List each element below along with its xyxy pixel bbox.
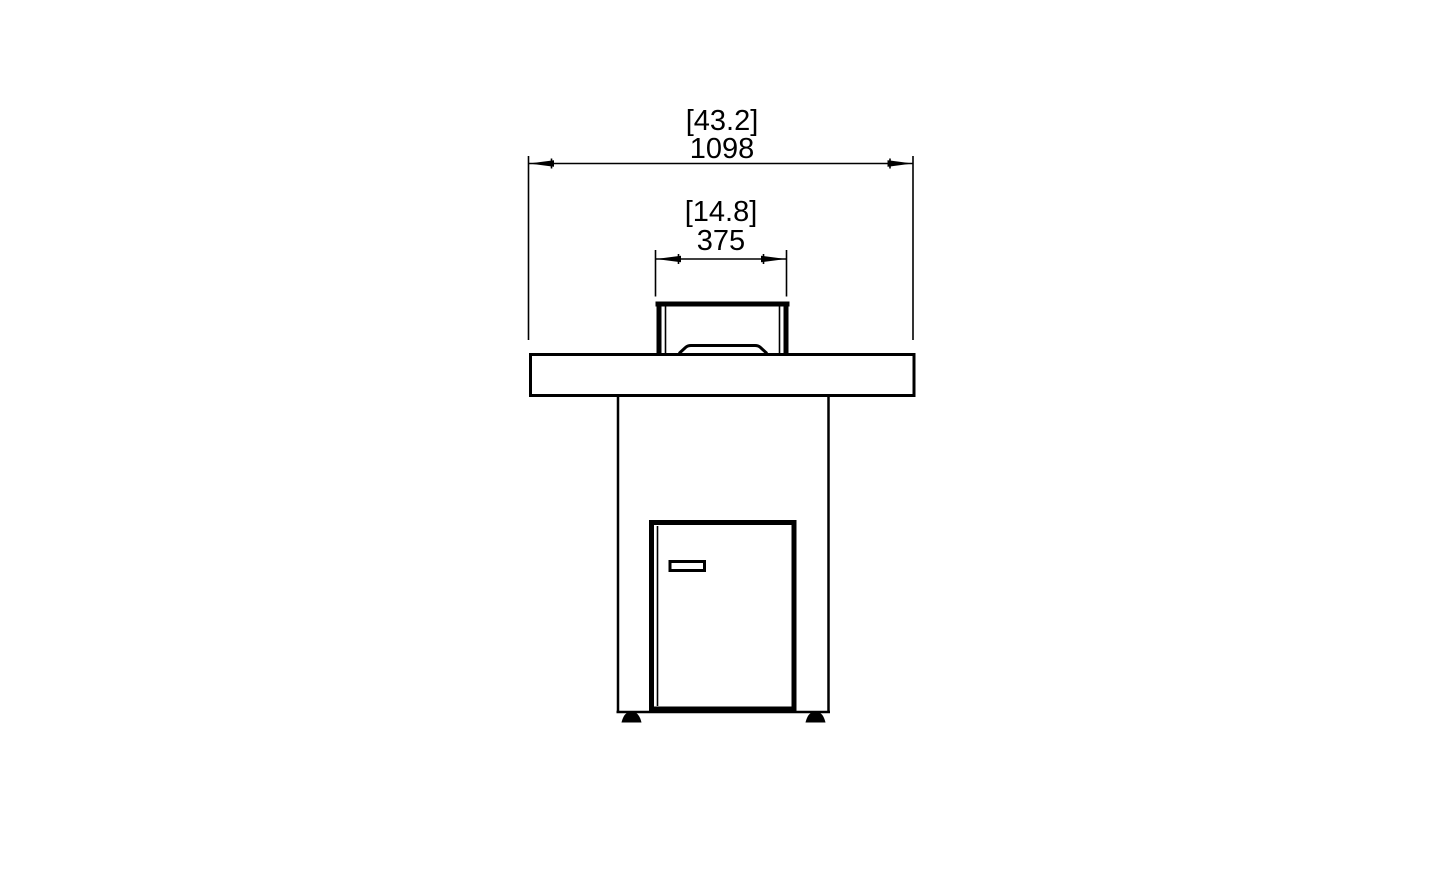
burner-width-dimension: [14.8] 375 [656, 196, 787, 297]
burner-width-right-arrow [761, 256, 786, 263]
overall-width-left-arrow [529, 160, 554, 167]
tabletop-outline [531, 355, 915, 396]
burner-tray-outline [679, 346, 767, 354]
burner-width-metric-label: 375 [697, 225, 745, 257]
overall-width-metric-label: 1098 [690, 133, 755, 165]
drawing-canvas: [43.2] 1098 [14.8] 375 [0, 0, 1445, 893]
burner-width-left-arrow [656, 256, 681, 263]
fire-table-elevation [531, 302, 915, 723]
fire-table-technical-drawing: [43.2] 1098 [14.8] 375 [0, 0, 1445, 893]
burner-width-imperial-label: [14.8] [685, 196, 758, 228]
overall-width-right-arrow [888, 160, 913, 167]
access-door-outline [652, 523, 795, 710]
door-handle [670, 562, 705, 571]
